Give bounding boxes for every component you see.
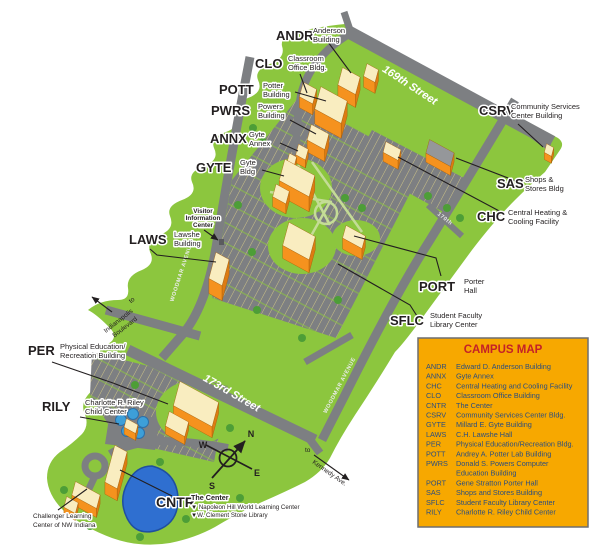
label-challenger-line2: Center of NW Indiana: [33, 522, 96, 529]
label-clo-code: CLO: [255, 56, 282, 71]
label-port-line2: Hall: [464, 286, 477, 295]
label-sflc-code: SFLC: [390, 313, 425, 328]
legend-code-cntr: CNTR: [426, 401, 446, 410]
label-andr-line2: Building: [313, 35, 340, 44]
legend-name-cntr: The Center: [456, 401, 493, 410]
label-pott-code: POTT: [219, 82, 254, 97]
label-cntr-line3: ▼W. Clement Stone Library: [191, 512, 269, 519]
label-chc-line2: Cooling Facility: [508, 217, 559, 226]
label-annx-code: ANNX: [210, 131, 247, 146]
label-port-code: PORT: [419, 279, 455, 294]
legend-title: CAMPUS MAP: [464, 344, 543, 356]
legend-code-laws: LAWS: [426, 430, 447, 439]
label-clo-line1: Classroom: [288, 54, 324, 63]
legend-name-sas: Shops and Stores Building: [456, 488, 542, 497]
legend-name-andr: Edward D. Anderson Building: [456, 362, 551, 371]
label-gyte-line1: Gyte: [240, 158, 256, 167]
legend: CAMPUS MAP ANDREdward D. Anderson Buildi…: [418, 338, 588, 527]
label-visitor-line3: Center: [193, 222, 213, 229]
label-laws-line2: Building: [174, 239, 201, 248]
roundabout: [85, 456, 105, 476]
compass-s: S: [209, 481, 215, 491]
visitor-info-booth: [219, 239, 224, 245]
legend-name-laws: C.H. Lawshe Hall: [456, 430, 513, 439]
legend-name-csrv: Community Services Center Bldg.: [456, 411, 566, 420]
legend-code-sflc: SFLC: [426, 498, 445, 507]
label-cntr-code: CNTR: [156, 494, 195, 510]
legend-name-pott: Andrey A. Potter Lab Building: [456, 449, 551, 458]
label-gyte-line2: Bldg: [240, 167, 255, 176]
to-kennedy-to: to: [305, 447, 311, 454]
label-csrv-code: CSRV: [479, 103, 515, 118]
label-pwrs-line2: Building: [258, 111, 285, 120]
legend-code-port: PORT: [426, 478, 447, 487]
label-chc-line1: Central Heating &: [508, 208, 567, 217]
label-port-line1: Porter: [464, 277, 485, 286]
legend-code-annx: ANNX: [426, 372, 446, 381]
compass-e: E: [254, 468, 260, 478]
label-sflc-line1: Student Faculty: [430, 311, 482, 320]
label-rily-line2: Child Center: [85, 407, 127, 416]
label-clo-line2: Office Bldg.: [288, 63, 327, 72]
label-pott-line1: Potter: [263, 81, 284, 90]
label-chc-code: CHC: [477, 209, 506, 224]
legend-name-annx: Gyte Annex: [456, 372, 494, 381]
label-rily-line1: Charlotte R. Riley: [85, 398, 144, 407]
label-per-code: PER: [28, 343, 55, 358]
label-annx-line1: Gyte: [249, 130, 265, 139]
label-sas-code: SAS: [497, 176, 524, 191]
legend-code-sas: SAS: [426, 488, 441, 497]
label-csrv-line1: Community Services: [511, 102, 580, 111]
legend-code-clo: CLO: [426, 391, 441, 400]
compass-n: N: [248, 429, 255, 439]
label-csrv-line2: Center Building: [511, 111, 562, 120]
legend-code-pott: POTT: [426, 449, 446, 458]
legend-name-gyte: Millard E. Gyte Building: [456, 420, 532, 429]
label-sas-line1: Shops &: [525, 175, 553, 184]
legend-code-rily: RILY: [426, 508, 442, 517]
legend-name-chc: Central Heating and Cooling Facility: [456, 381, 573, 390]
label-pott-line2: Building: [263, 90, 290, 99]
legend-code-chc: CHC: [426, 381, 442, 390]
legend-name-rily: Charlotte R. Riley Child Center: [456, 508, 556, 517]
label-pwrs-code: PWRS: [211, 103, 250, 118]
label-sflc-line2: Library Center: [430, 320, 478, 329]
label-rily-code: RILY: [42, 399, 71, 414]
legend-code-per: PER: [426, 440, 441, 449]
campus-map: 169th Street 173rd Street WOODMAR AVENUE…: [0, 0, 600, 551]
label-cntr-line2: ▼ Napoleon Hill World Learning Center: [191, 504, 300, 511]
label-per-line1: Physical Education/: [60, 342, 126, 351]
label-annx-line2: Annex: [249, 139, 271, 148]
legend-code-andr: ANDR: [426, 362, 447, 371]
legend-name-port: Gene Stratton Porter Hall: [456, 478, 538, 487]
label-challenger-line1: Challenger Learning: [33, 513, 92, 520]
compass-w: W: [199, 440, 208, 450]
label-sas-line2: Stores Bldg: [525, 184, 564, 193]
legend-name2-pwrs: Education Building: [456, 469, 516, 478]
label-andr-line1: Anderson: [313, 26, 345, 35]
label-pwrs-line1: Powers: [258, 102, 283, 111]
legend-name-sflc: Student Faculty Library Center: [456, 498, 556, 507]
legend-code-gyte: GYTE: [426, 420, 446, 429]
legend-name-pwrs: Donald S. Powers Computer: [456, 459, 549, 468]
campus-map-canvas: 169th Street 173rd Street WOODMAR AVENUE…: [0, 0, 600, 551]
legend-name-clo: Classroom Office Building: [456, 391, 540, 400]
label-per-line2: Recreation Building: [60, 351, 125, 360]
legend-code-csrv: CSRV: [426, 411, 446, 420]
legend-code-pwrs: PWRS: [426, 459, 448, 468]
legend-name-per: Physical Education/Recreation Bldg.: [456, 440, 574, 449]
label-visitor-line1: Visitor: [193, 208, 213, 215]
label-visitor-line2: Information: [186, 215, 221, 222]
label-gyte-code: GYTE: [196, 160, 232, 175]
label-laws-code: LAWS: [129, 232, 167, 247]
label-andr-code: ANDR: [276, 28, 314, 43]
label-cntr-line1: The Center: [191, 493, 229, 502]
label-laws-line1: Lawshe: [174, 230, 200, 239]
